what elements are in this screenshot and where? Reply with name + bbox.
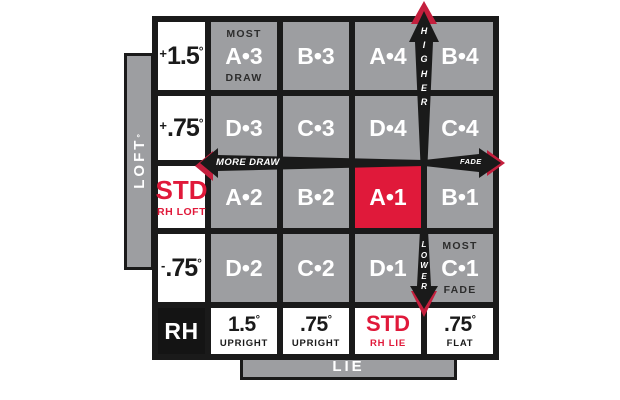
loft-sign: + (159, 118, 167, 133)
degree-symbol: ° (199, 44, 204, 58)
loft-sign: - (161, 258, 165, 273)
cell-D1: D•1 (355, 234, 421, 302)
cell-C3: C•3 (283, 96, 349, 160)
lie-cell-std: STD RH LIE (355, 308, 421, 354)
loft-row-std: STD RH LOFT (158, 166, 205, 228)
cell-C1-code: C•1 (441, 257, 478, 280)
cell-C1-bottom-label: FADE (444, 285, 477, 296)
cell-C1-top-label: MOST (442, 241, 477, 252)
cell-A3: MOST A•3 DRAW (211, 22, 277, 90)
std-loft-sub: RH LOFT (157, 207, 206, 218)
cell-A1-standard-highlight: A•1 (355, 166, 421, 228)
loft-row-plus-1-5: +1.5° (158, 22, 205, 90)
cell-A3-top-label: MOST (226, 29, 261, 40)
cell-D4: D•4 (355, 96, 421, 160)
cell-C2: C•2 (283, 234, 349, 302)
cell-D2: D•2 (211, 234, 277, 302)
hand-cell-rh: RH (158, 308, 205, 354)
cell-C1: MOST C•1 FADE (427, 234, 493, 302)
std-lie-value: STD (366, 313, 410, 335)
cell-A2: A•2 (211, 166, 277, 228)
loft-lie-fitting-chart: LOFT° LIE +1.5° MOST A•3 DRAW B•3 A•4 B•… (0, 0, 620, 400)
degree-symbol: ° (199, 116, 204, 130)
loft-row-minus-0-75: -.75° (158, 234, 205, 302)
std-lie-sub: RH LIE (370, 339, 406, 349)
lie-cell-1-5-upright: 1.5° UPRIGHT (211, 308, 277, 354)
loft-degree-symbol: ° (135, 134, 145, 138)
loft-row-plus-0-75: +.75° (158, 96, 205, 160)
cell-B3: B•3 (283, 22, 349, 90)
loft-axis-bar: LOFT° (124, 53, 154, 270)
degree-symbol: ° (328, 314, 332, 326)
cell-C4: C•4 (427, 96, 493, 160)
loft-sign: + (159, 46, 167, 61)
cell-B2: B•2 (283, 166, 349, 228)
std-loft-value: STD (156, 177, 208, 203)
degree-symbol: ° (197, 256, 202, 270)
degree-symbol: ° (256, 314, 260, 326)
degree-symbol: ° (472, 314, 476, 326)
cell-D3: D•3 (211, 96, 277, 160)
cell-B1: B•1 (427, 166, 493, 228)
lie-axis-label: LIE (332, 359, 364, 377)
setting-grid: +1.5° MOST A•3 DRAW B•3 A•4 B•4 +.75° D•… (152, 16, 499, 360)
cell-B4: B•4 (427, 22, 493, 90)
cell-A3-code: A•3 (225, 45, 262, 68)
cell-A3-bottom-label: DRAW (226, 73, 263, 84)
lie-cell-0-75-flat: .75° FLAT (427, 308, 493, 354)
cell-A4: A•4 (355, 22, 421, 90)
lie-cell-0-75-upright: .75° UPRIGHT (283, 308, 349, 354)
loft-axis-label: LOFT° (131, 134, 148, 189)
